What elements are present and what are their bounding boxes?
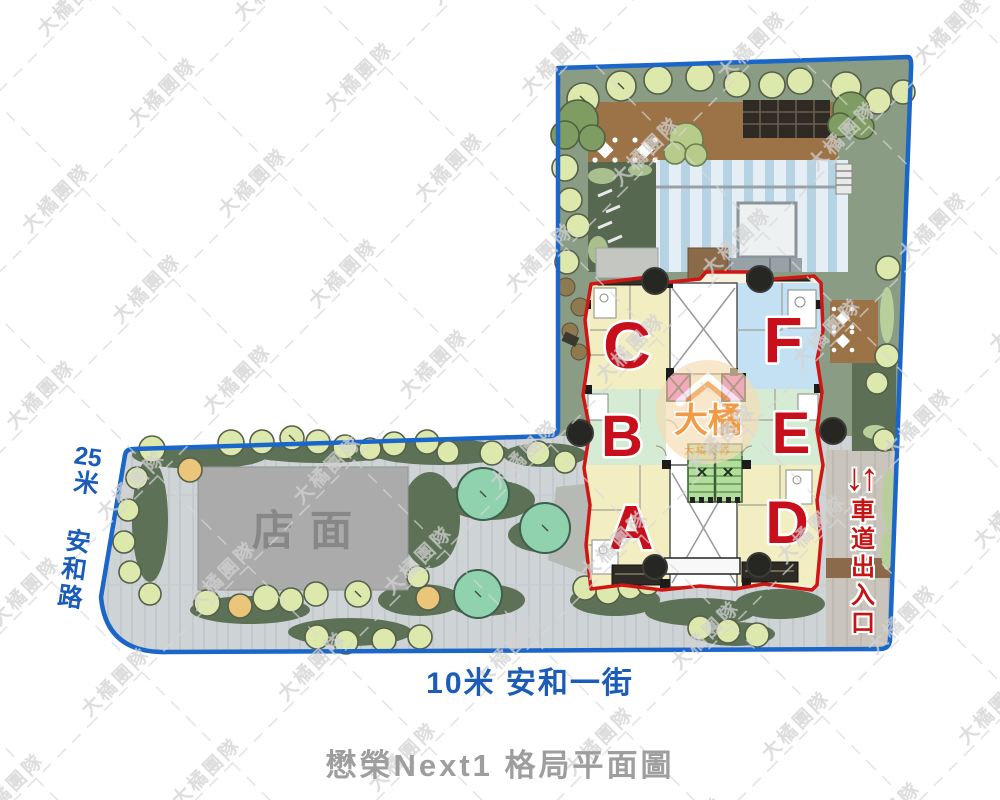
floor-plan-page: 大橘團隊	[0, 0, 1000, 800]
watermark-layer	[0, 0, 1000, 800]
site-plan-svg: 大橘團隊	[0, 0, 1000, 800]
